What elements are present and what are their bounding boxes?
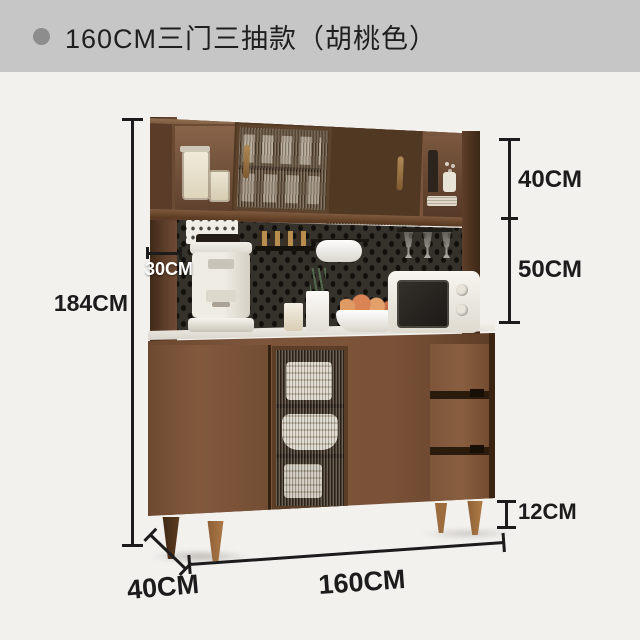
paper-towel-roll bbox=[316, 240, 362, 262]
drawer-bottom bbox=[430, 455, 493, 503]
coffee-group-head bbox=[206, 290, 236, 302]
header-bar: 160CM三门三抽款（胡桃色） bbox=[0, 0, 640, 72]
drawer-top bbox=[430, 344, 493, 391]
coffee-machine-base bbox=[188, 318, 254, 332]
tick bbox=[501, 217, 518, 220]
product-dimension-image: 160CM三门三抽款（胡桃色） bbox=[0, 0, 640, 640]
shelf-depth-line bbox=[147, 252, 182, 255]
large-bowl bbox=[282, 414, 338, 450]
coffee-machine-panel bbox=[208, 259, 234, 269]
cups-stack bbox=[363, 526, 405, 564]
microwave bbox=[388, 271, 480, 333]
coffee-machine bbox=[188, 242, 254, 334]
tick bbox=[146, 247, 149, 259]
white-jar bbox=[401, 634, 419, 640]
spice-shelf-board bbox=[255, 246, 315, 251]
right-dim-line bbox=[508, 139, 511, 324]
spice-jars-row bbox=[258, 231, 310, 247]
hutch-right-cubby bbox=[423, 136, 463, 218]
shelf-depth-label: 30CM bbox=[145, 260, 203, 278]
door-gap-line bbox=[268, 345, 271, 515]
glassware-row bbox=[241, 173, 320, 204]
open-height-label: 50CM bbox=[518, 258, 582, 282]
door-handle-right bbox=[396, 156, 403, 190]
dark-bottle bbox=[428, 150, 438, 192]
leg-height-label: 12CM bbox=[518, 501, 577, 523]
drawer-notch bbox=[470, 445, 484, 453]
glass-door-left bbox=[272, 346, 348, 510]
teal-cup bbox=[369, 630, 395, 640]
hutch-glass-doors-band bbox=[232, 122, 423, 217]
interior-shelf bbox=[355, 618, 423, 622]
height-dim-line bbox=[131, 120, 134, 547]
drawer-middle bbox=[430, 399, 493, 447]
interior-shelf bbox=[276, 404, 344, 408]
straw-cup bbox=[306, 291, 329, 331]
hutch-left-cubby bbox=[175, 126, 237, 218]
tick bbox=[122, 544, 143, 547]
product-title: 160CM三门三抽款（胡桃色） bbox=[65, 17, 437, 56]
portafilter bbox=[212, 302, 230, 307]
bowls-stack bbox=[286, 362, 332, 400]
wine-glass-rack-bar bbox=[397, 228, 453, 232]
tick bbox=[143, 528, 157, 542]
storage-jar-large bbox=[182, 150, 210, 200]
hutch-upper-cabinet bbox=[150, 112, 480, 227]
microwave-knob bbox=[456, 284, 468, 296]
interior-shelf bbox=[276, 454, 344, 458]
storage-jar-lid bbox=[180, 146, 210, 152]
tick bbox=[497, 500, 516, 503]
cabinet-right-edge-shade bbox=[489, 333, 495, 515]
plate-stack bbox=[427, 196, 457, 206]
hutch-height-label: 40CM bbox=[518, 168, 582, 192]
height-label: 184CM bbox=[50, 292, 128, 315]
tick bbox=[122, 118, 143, 121]
small-vase bbox=[443, 172, 456, 192]
tick bbox=[499, 138, 520, 141]
tick bbox=[179, 247, 182, 259]
storage-jar-small bbox=[209, 170, 230, 202]
tick bbox=[497, 526, 516, 529]
tick bbox=[499, 321, 520, 324]
base-cabinet bbox=[148, 331, 495, 521]
glassware-row bbox=[242, 134, 321, 165]
depth-label: 40CM bbox=[125, 571, 201, 604]
drawer-notch bbox=[470, 389, 484, 397]
microwave-window bbox=[397, 280, 449, 328]
hutch-shelf-line bbox=[238, 165, 321, 172]
wood-door-left bbox=[151, 345, 268, 515]
dish-stack bbox=[284, 464, 322, 498]
microwave-knob bbox=[456, 304, 468, 316]
latte-cup bbox=[284, 303, 303, 331]
bullet-dot-icon bbox=[33, 28, 50, 45]
leg-dim-line bbox=[505, 501, 508, 529]
flower-sprigs bbox=[445, 162, 449, 166]
width-label: 160CM bbox=[311, 566, 413, 600]
